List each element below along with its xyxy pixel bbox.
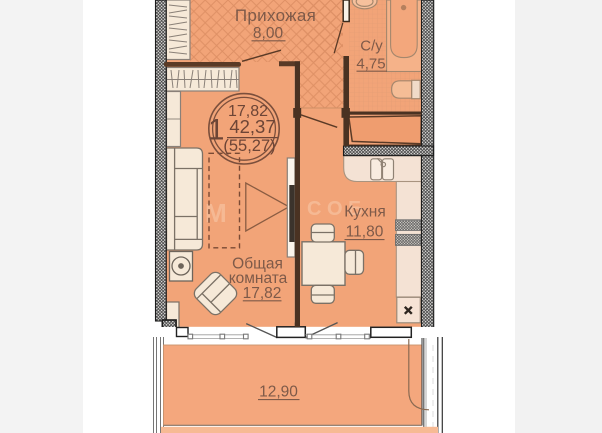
svg-text:1: 1	[208, 114, 224, 147]
svg-text:12,90: 12,90	[259, 383, 298, 400]
svg-text:4,75: 4,75	[356, 56, 385, 73]
svg-text:М: М	[205, 198, 227, 228]
svg-text:17,82: 17,82	[243, 285, 282, 302]
svg-text:11,80: 11,80	[346, 223, 384, 240]
svg-text:С/у: С/у	[360, 38, 383, 55]
svg-text:8,00: 8,00	[253, 25, 284, 42]
svg-text:42,37: 42,37	[229, 116, 275, 137]
svg-text:Прихожая: Прихожая	[235, 6, 316, 25]
svg-text:(55,27): (55,27)	[223, 137, 275, 155]
svg-text:Кухня: Кухня	[344, 203, 385, 220]
